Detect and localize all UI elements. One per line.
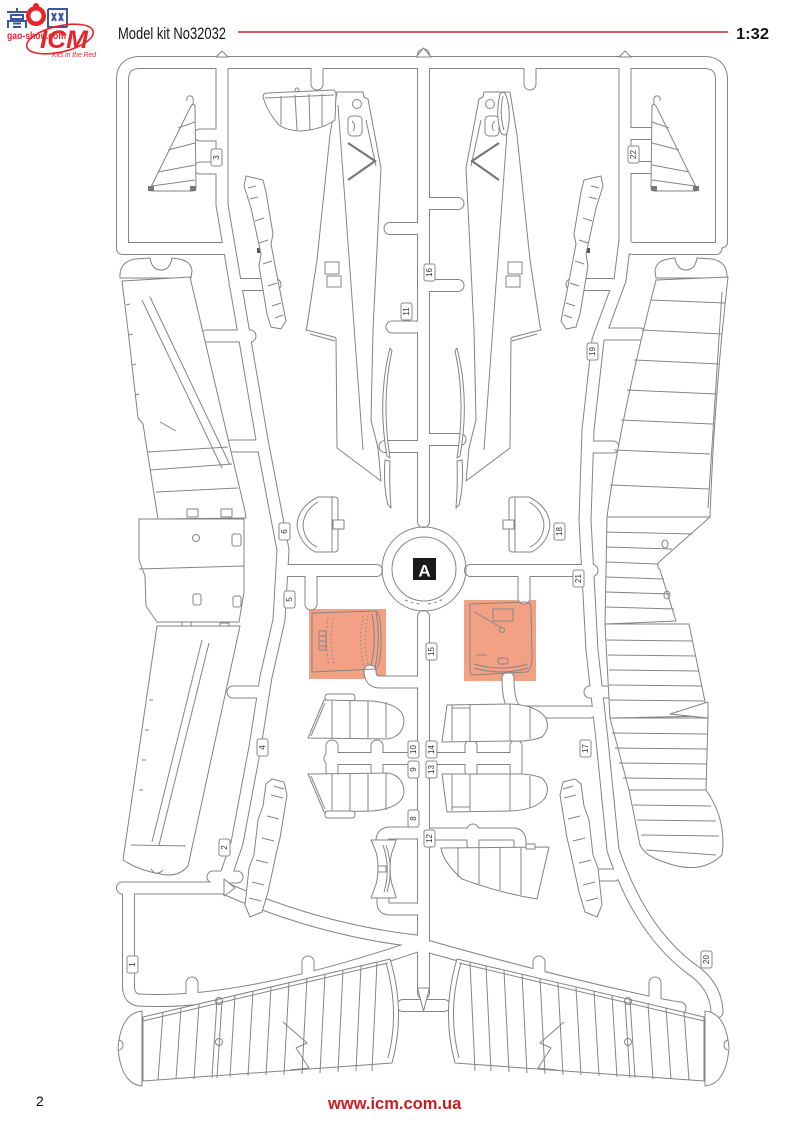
svg-text:Model kit No32032: Model kit No32032 [118, 25, 226, 43]
svg-text:11: 11 [402, 307, 411, 316]
svg-text:17: 17 [581, 744, 590, 753]
svg-text:15: 15 [427, 647, 436, 656]
svg-text:22: 22 [629, 150, 638, 159]
svg-text:www.icm.com.ua: www.icm.com.ua [327, 1095, 462, 1113]
svg-text:4: 4 [258, 745, 267, 750]
svg-text:Kits in the Red: Kits in the Red [52, 52, 97, 59]
svg-text:3: 3 [212, 155, 221, 160]
svg-text:19: 19 [588, 347, 597, 356]
svg-text:20: 20 [702, 955, 711, 964]
svg-text:A: A [418, 562, 430, 581]
svg-text:12: 12 [425, 834, 434, 843]
svg-text:8: 8 [409, 816, 418, 821]
svg-text:13: 13 [427, 765, 436, 774]
svg-text:1: 1 [128, 962, 137, 967]
svg-text:6: 6 [280, 529, 289, 534]
svg-text:1:32: 1:32 [736, 26, 769, 43]
svg-text:9: 9 [409, 767, 418, 772]
svg-text:2: 2 [36, 1093, 44, 1109]
svg-text:ICM: ICM [40, 26, 89, 54]
svg-text:10: 10 [409, 745, 418, 754]
svg-text:16: 16 [425, 268, 434, 277]
svg-text:21: 21 [574, 574, 583, 583]
svg-text:2: 2 [220, 845, 229, 850]
svg-text:18: 18 [555, 527, 564, 536]
svg-text:5: 5 [285, 597, 294, 602]
svg-text:14: 14 [427, 745, 436, 754]
